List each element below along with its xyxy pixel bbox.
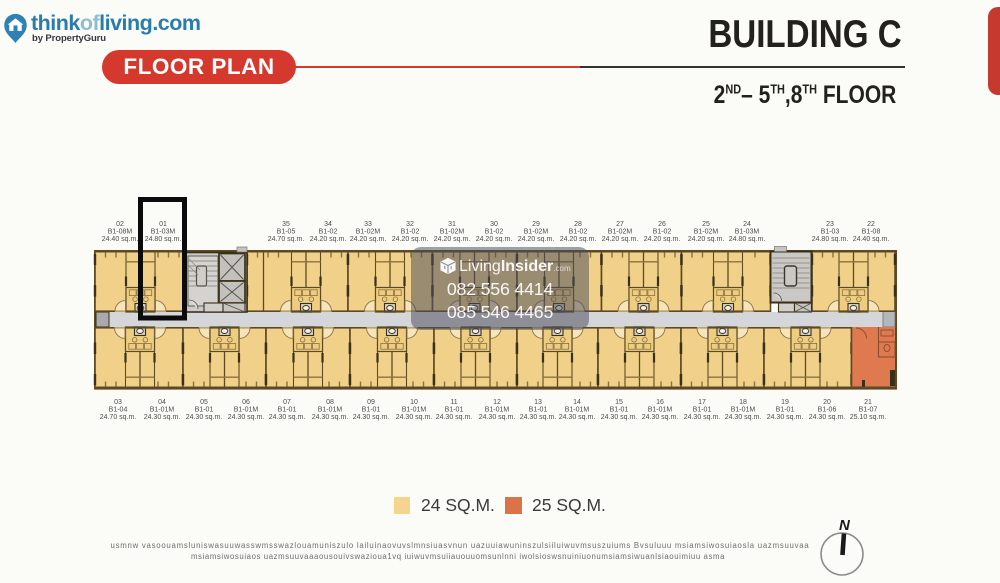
svg-text:08: 08 <box>326 399 334 406</box>
svg-text:B1-02: B1-02 <box>401 229 420 236</box>
svg-text:24.20 sq.m.: 24.20 sq.m. <box>350 236 387 243</box>
svg-text:01: 01 <box>159 221 167 228</box>
svg-text:24.30 sq.m.: 24.30 sq.m. <box>725 414 762 421</box>
svg-text:N: N <box>839 517 851 534</box>
svg-text:B1-06: B1-06 <box>818 407 837 414</box>
svg-text:24.30 sq.m.: 24.30 sq.m. <box>684 414 721 421</box>
svg-text:17: 17 <box>698 399 706 406</box>
svg-text:B1-03: B1-03 <box>821 229 840 236</box>
svg-text:29: 29 <box>532 221 540 228</box>
svg-text:B1-03M: B1-03M <box>735 229 760 236</box>
svg-text:04: 04 <box>158 399 166 406</box>
svg-text:13: 13 <box>534 399 542 406</box>
svg-text:23: 23 <box>826 221 834 228</box>
svg-text:24.20 sq.m.: 24.20 sq.m. <box>560 236 597 243</box>
svg-text:B1-02M: B1-02M <box>524 229 549 236</box>
svg-text:32: 32 <box>406 221 414 228</box>
svg-text:24.30 sq.m.: 24.30 sq.m. <box>228 414 265 421</box>
svg-text:16: 16 <box>656 399 664 406</box>
svg-text:B1-01: B1-01 <box>776 407 795 414</box>
svg-text:B1-02M: B1-02M <box>608 229 633 236</box>
svg-text:24.30 sq.m.: 24.30 sq.m. <box>642 414 679 421</box>
svg-text:B1-01: B1-01 <box>362 407 381 414</box>
svg-text:18: 18 <box>739 399 747 406</box>
svg-text:06: 06 <box>242 399 250 406</box>
svg-text:20: 20 <box>823 399 831 406</box>
svg-text:B1-01: B1-01 <box>278 407 297 414</box>
svg-text:24.30 sq.m.: 24.30 sq.m. <box>601 414 638 421</box>
svg-text:24.40 sq.m.: 24.40 sq.m. <box>853 236 890 243</box>
svg-text:12: 12 <box>493 399 501 406</box>
svg-text:24.20 sq.m.: 24.20 sq.m. <box>518 236 555 243</box>
svg-text:24.30 sq.m.: 24.30 sq.m. <box>436 414 473 421</box>
svg-text:24.30 sq.m.: 24.30 sq.m. <box>767 414 804 421</box>
svg-text:B1-01M: B1-01M <box>485 407 510 414</box>
svg-text:B1-02: B1-02 <box>653 229 672 236</box>
svg-text:24.20 sq.m.: 24.20 sq.m. <box>434 236 471 243</box>
svg-text:B1-02: B1-02 <box>569 229 588 236</box>
svg-text:31: 31 <box>448 221 456 228</box>
svg-text:B1-07: B1-07 <box>859 407 878 414</box>
svg-text:22: 22 <box>867 221 875 228</box>
svg-text:24.70 sq.m.: 24.70 sq.m. <box>100 414 137 421</box>
svg-text:B1-01: B1-01 <box>195 407 214 414</box>
svg-text:082 556 4414: 082 556 4414 <box>447 279 554 299</box>
svg-text:B1-01M: B1-01M <box>234 407 259 414</box>
svg-text:085 546 4465: 085 546 4465 <box>447 302 554 322</box>
svg-text:B1-01M: B1-01M <box>150 407 175 414</box>
svg-text:09: 09 <box>367 399 375 406</box>
svg-text:24.40 sq.m.: 24.40 sq.m. <box>102 236 139 243</box>
svg-text:24.20 sq.m.: 24.20 sq.m. <box>644 236 681 243</box>
svg-text:B1-05: B1-05 <box>277 229 296 236</box>
svg-text:24.20 sq.m.: 24.20 sq.m. <box>602 236 639 243</box>
svg-text:25: 25 <box>702 221 710 228</box>
svg-text:11: 11 <box>450 399 457 406</box>
svg-text:21: 21 <box>864 399 872 406</box>
svg-text:35: 35 <box>282 221 290 228</box>
svg-text:usmnw vasoouamsluniswasuuwassw: usmnw vasoouamsluniswasuuwasswmsswazloua… <box>111 541 810 550</box>
svg-text:19: 19 <box>781 399 789 406</box>
svg-text:27: 27 <box>616 221 624 228</box>
svg-text:02: 02 <box>116 221 124 228</box>
svg-text:25 SQ.M.: 25 SQ.M. <box>532 495 606 515</box>
svg-text:B1-01: B1-01 <box>693 407 712 414</box>
svg-text:15: 15 <box>615 399 623 406</box>
svg-text:24.20 sq.m.: 24.20 sq.m. <box>476 236 513 243</box>
svg-text:24.30 sq.m.: 24.30 sq.m. <box>479 414 516 421</box>
svg-text:07: 07 <box>283 399 291 406</box>
svg-text:B1-01: B1-01 <box>529 407 548 414</box>
svg-text:B1-01M: B1-01M <box>565 407 590 414</box>
svg-text:24.80 sq.m.: 24.80 sq.m. <box>729 236 766 243</box>
svg-text:B1-02M: B1-02M <box>356 229 381 236</box>
svg-text:B1-02: B1-02 <box>485 229 504 236</box>
svg-text:24.30 sq.m.: 24.30 sq.m. <box>144 414 181 421</box>
svg-text:B1-01: B1-01 <box>445 407 464 414</box>
svg-text:24.30 sq.m.: 24.30 sq.m. <box>809 414 846 421</box>
svg-text:03: 03 <box>114 399 122 406</box>
svg-text:msiamsiwosuiaos uazmsuuvaaaous: msiamsiwosuiaos uazmsuuvaaaousouivswazio… <box>191 552 725 561</box>
svg-text:24.70 sq.m.: 24.70 sq.m. <box>268 236 305 243</box>
svg-text:B1-02M: B1-02M <box>694 229 719 236</box>
svg-text:24.30 sq.m.: 24.30 sq.m. <box>353 414 390 421</box>
svg-text:24.30 sq.m.: 24.30 sq.m. <box>559 414 596 421</box>
svg-text:B1-08: B1-08 <box>862 229 881 236</box>
svg-text:B1-08M: B1-08M <box>108 229 133 236</box>
svg-text:B1-03M: B1-03M <box>151 229 176 236</box>
svg-text:B1-01: B1-01 <box>610 407 629 414</box>
svg-text:B1-01M: B1-01M <box>648 407 673 414</box>
svg-text:26: 26 <box>658 221 666 228</box>
svg-text:B1-04: B1-04 <box>109 407 128 414</box>
svg-text:B1-01M: B1-01M <box>731 407 756 414</box>
svg-text:30: 30 <box>490 221 498 228</box>
svg-text:24.30 sq.m.: 24.30 sq.m. <box>520 414 557 421</box>
svg-text:28: 28 <box>574 221 582 228</box>
svg-text:B1-02: B1-02 <box>319 229 338 236</box>
svg-text:24.30 sq.m.: 24.30 sq.m. <box>396 414 433 421</box>
svg-text:24.80 sq.m.: 24.80 sq.m. <box>145 236 182 243</box>
svg-text:10: 10 <box>410 399 418 406</box>
svg-text:24: 24 <box>743 221 751 228</box>
svg-text:B1-02M: B1-02M <box>440 229 465 236</box>
svg-text:05: 05 <box>200 399 208 406</box>
svg-text:33: 33 <box>364 221 372 228</box>
svg-text:14: 14 <box>573 399 581 406</box>
svg-text:24.20 sq.m.: 24.20 sq.m. <box>310 236 347 243</box>
svg-text:24.20 sq.m.: 24.20 sq.m. <box>688 236 725 243</box>
svg-text:24 SQ.M.: 24 SQ.M. <box>421 495 495 515</box>
svg-text:24.20 sq.m.: 24.20 sq.m. <box>392 236 429 243</box>
svg-text:24.80 sq.m.: 24.80 sq.m. <box>812 236 849 243</box>
svg-text:25.10 sq.m.: 25.10 sq.m. <box>850 414 887 421</box>
svg-text:24.30 sq.m.: 24.30 sq.m. <box>269 414 306 421</box>
svg-text:24.30 sq.m.: 24.30 sq.m. <box>186 414 223 421</box>
svg-text:34: 34 <box>324 221 332 228</box>
svg-text:B1-01M: B1-01M <box>402 407 427 414</box>
svg-text:24.30 sq.m.: 24.30 sq.m. <box>312 414 349 421</box>
svg-text:B1-01M: B1-01M <box>318 407 343 414</box>
